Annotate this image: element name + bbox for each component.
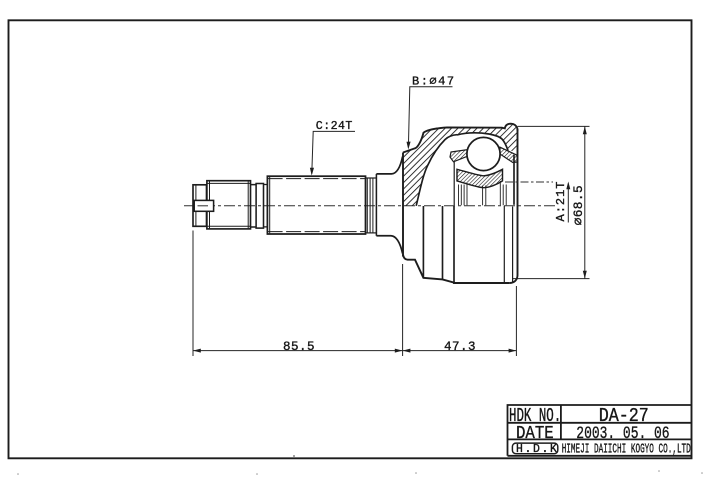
svg-text:85.5: 85.5 (283, 340, 315, 354)
svg-text:2003. 05. 06: 2003. 05. 06 (576, 423, 669, 444)
svg-text:DATE: DATE (516, 424, 554, 444)
svg-text:H.D.K: H.D.K (516, 443, 559, 456)
svg-text:⌀68.5: ⌀68.5 (571, 185, 586, 225)
svg-text:C:24T: C:24T (316, 120, 353, 133)
svg-text:HIMEJI DAIICHI KOGYO CO.,LTD: HIMEJI DAIICHI KOGYO CO.,LTD (562, 443, 691, 458)
svg-text:47.3: 47.3 (444, 340, 476, 354)
svg-text:A:21T: A:21T (554, 180, 568, 221)
